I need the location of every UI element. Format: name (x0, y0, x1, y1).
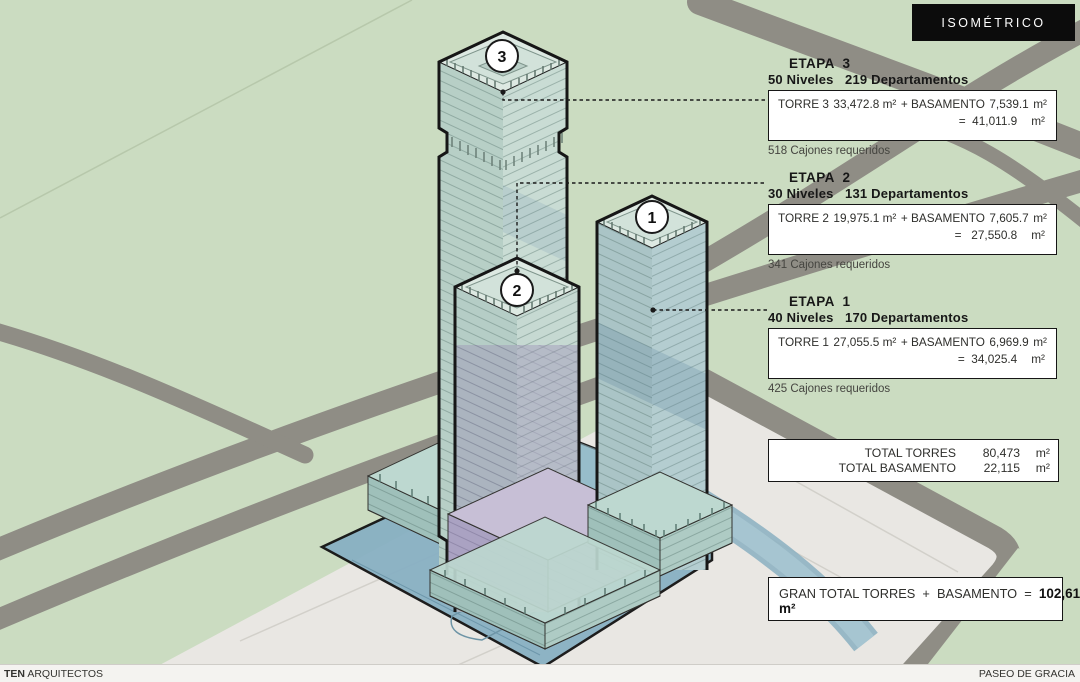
plus-basamento: + BASAMENTO (901, 335, 985, 349)
basamento-unit: m² (1033, 97, 1047, 111)
stage-total: = 34,025.4 (958, 352, 1017, 366)
torre-area: 27,055.5 m² (833, 335, 896, 349)
stage-subtitle: 50 Niveles 219 Departamentos (768, 72, 1057, 87)
stage-title: ETAPA 2 (789, 170, 1057, 185)
stage-title: ETAPA 1 (789, 294, 1057, 309)
parking-note: 341 Cajones requeridos (768, 259, 1057, 271)
project-name: PASEO DE GRACIA (979, 668, 1075, 680)
stage-annotation-etapa-1: ETAPA 1 40 Niveles 170 Departamentos TOR… (768, 294, 1057, 395)
torre-area: 19,975.1 m² (833, 211, 896, 225)
torre-label: TORRE 1 (778, 335, 829, 349)
plus-basamento: + BASAMENTO (901, 211, 985, 225)
stage-total: = 41,011.9 (959, 114, 1018, 128)
total-basamento-value: 22,115 (956, 461, 1020, 476)
stage-total-unit: m² (1031, 228, 1045, 242)
stage-area-box: TORRE 3 33,472.8 m² + BASAMENTO 7,539.1 … (768, 90, 1057, 141)
grand-total-box: GRAN TOTAL TORRES + BASAMENTO = 102,618 … (768, 577, 1063, 621)
view-title-tag: ISOMÉTRICO (912, 4, 1075, 41)
total-torres-label: TOTAL TORRES (769, 446, 956, 461)
svg-text:1: 1 (648, 210, 657, 227)
view-title: ISOMÉTRICO (941, 16, 1045, 30)
total-torres-value: 80,473 (956, 446, 1020, 461)
stage-title: ETAPA 3 (789, 56, 1057, 71)
stage-total: = 27,550.8 (955, 228, 1018, 242)
svg-text:3: 3 (498, 49, 507, 66)
total-basamento-unit: m² (1020, 461, 1050, 476)
stage-subtitle: 30 Niveles 131 Departamentos (768, 186, 1057, 201)
isometric-diagram-page: 3 2 1 ISOMÉTRICO ETAPA 3 50 Niveles 219 … (0, 0, 1080, 682)
torre-label: TORRE 3 (778, 97, 829, 111)
total-basamento-label: TOTAL BASAMENTO (769, 461, 956, 476)
tower-3-marker: 3 (486, 40, 518, 72)
grand-total-label: GRAN TOTAL TORRES + BASAMENTO = (779, 586, 1039, 601)
basamento-area: 7,605.7 (989, 211, 1028, 225)
stage-annotation-etapa-3: ETAPA 3 50 Niveles 219 Departamentos TOR… (768, 56, 1057, 157)
tower-1-marker: 1 (636, 201, 668, 233)
basamento-unit: m² (1033, 211, 1047, 225)
firm-credit: TEN ARQUITECTOS (4, 668, 103, 680)
torre-label: TORRE 2 (778, 211, 829, 225)
stage-area-box: TORRE 2 19,975.1 m² + BASAMENTO 7,605.7 … (768, 204, 1057, 255)
torre-area: 33,472.8 m² (833, 97, 896, 111)
credit-strip: TEN ARQUITECTOS PASEO DE GRACIA (0, 664, 1080, 682)
total-torres-unit: m² (1020, 446, 1050, 461)
stage-subtitle: 40 Niveles 170 Departamentos (768, 310, 1057, 325)
basamento-area: 6,969.9 (989, 335, 1028, 349)
svg-text:2: 2 (513, 283, 522, 300)
tower-2-marker: 2 (501, 274, 533, 306)
stage-total-unit: m² (1031, 352, 1045, 366)
basamento-unit: m² (1033, 335, 1047, 349)
stage-total-unit: m² (1031, 114, 1045, 128)
parking-note: 518 Cajones requeridos (768, 145, 1057, 157)
stage-area-box: TORRE 1 27,055.5 m² + BASAMENTO 6,969.9 … (768, 328, 1057, 379)
totals-box: TOTAL TORRES 80,473 m² TOTAL BASAMENTO 2… (768, 439, 1059, 482)
stage-annotation-etapa-2: ETAPA 2 30 Niveles 131 Departamentos TOR… (768, 170, 1057, 271)
basamento-area: 7,539.1 (989, 97, 1028, 111)
parking-note: 425 Cajones requeridos (768, 383, 1057, 395)
plus-basamento: + BASAMENTO (901, 97, 985, 111)
